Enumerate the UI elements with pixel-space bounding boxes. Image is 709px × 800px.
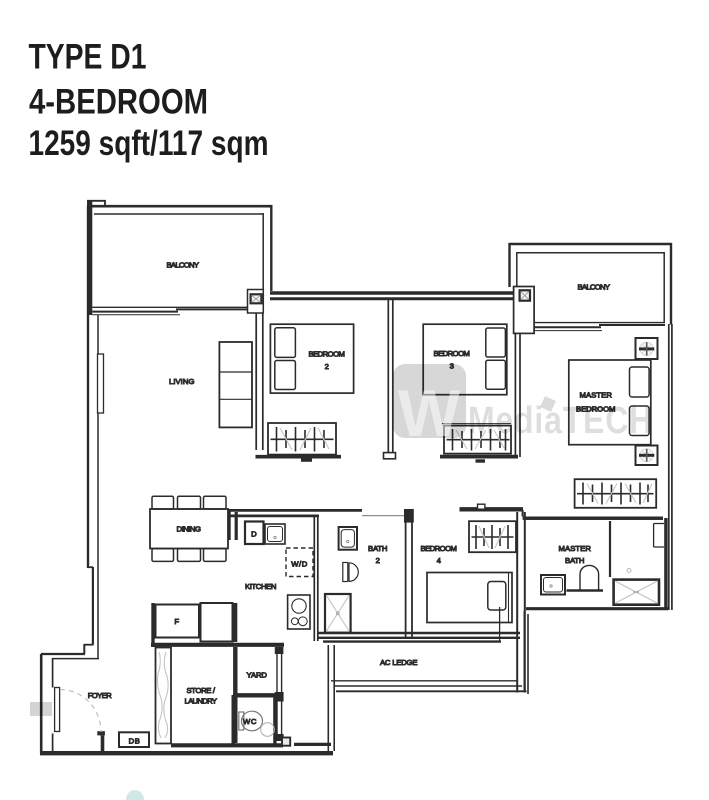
svg-text:2: 2	[376, 556, 381, 565]
svg-text:STORE /: STORE /	[187, 686, 216, 695]
svg-text:W: W	[398, 376, 461, 450]
svg-text:BEDROOM: BEDROOM	[421, 544, 458, 553]
svg-text:BATH: BATH	[565, 556, 585, 565]
svg-text:1259 sqft/117 sqm: 1259 sqft/117 sqm	[29, 124, 269, 163]
svg-text:WC: WC	[243, 717, 257, 726]
svg-text:LAUNDRY: LAUNDRY	[185, 697, 218, 706]
svg-text:F: F	[174, 617, 179, 626]
svg-text:4: 4	[437, 556, 442, 565]
svg-text:TYPE D1: TYPE D1	[29, 38, 147, 77]
svg-text:W/D: W/D	[291, 560, 308, 569]
svg-text:BALCONY: BALCONY	[578, 283, 611, 292]
svg-text:BALCONY: BALCONY	[167, 261, 200, 270]
svg-text:2: 2	[325, 362, 330, 371]
svg-text:MASTER: MASTER	[580, 391, 613, 400]
svg-text:MASTER: MASTER	[559, 544, 592, 553]
svg-text:BEDROOM: BEDROOM	[434, 349, 471, 358]
svg-text:BATH: BATH	[368, 544, 388, 553]
svg-text:LIVING: LIVING	[169, 377, 195, 386]
svg-text:DINING: DINING	[177, 525, 202, 534]
svg-text:AC LEDGE: AC LEDGE	[380, 658, 418, 667]
svg-text:DB: DB	[129, 737, 141, 746]
svg-text:FOYER: FOYER	[88, 691, 113, 700]
svg-text:BEDROOM: BEDROOM	[309, 350, 346, 359]
svg-text:YARD: YARD	[247, 671, 268, 680]
svg-text:MediaTECH: MediaTECH	[468, 400, 653, 442]
svg-text:4-BEDROOM: 4-BEDROOM	[29, 83, 208, 122]
svg-text:D: D	[251, 530, 257, 539]
svg-text:KITCHEN: KITCHEN	[245, 582, 277, 591]
